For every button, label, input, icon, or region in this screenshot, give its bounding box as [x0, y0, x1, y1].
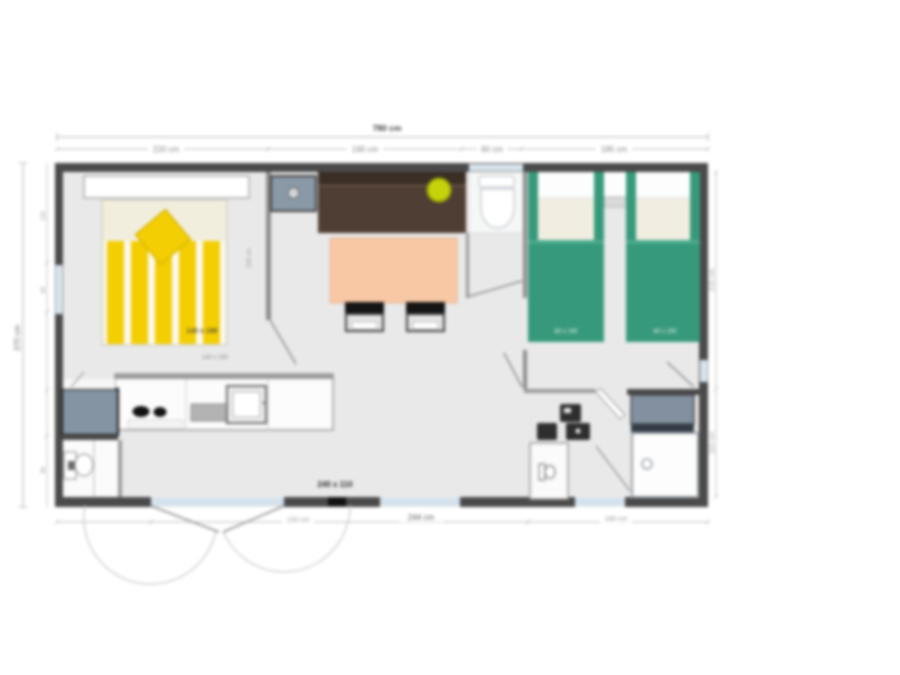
svg-text:80 x 190: 80 x 190 [653, 329, 677, 335]
svg-text:180 cm: 180 cm [605, 516, 628, 523]
svg-text:200 cm: 200 cm [247, 248, 253, 268]
svg-text:110 cm: 110 cm [709, 432, 716, 455]
svg-text:215 cm: 215 cm [709, 268, 716, 291]
svg-text:240 x 110: 240 x 110 [317, 480, 353, 489]
svg-text:80 x 190: 80 x 190 [554, 329, 578, 335]
svg-text:244 cm: 244 cm [408, 513, 435, 522]
svg-text:185 cm: 185 cm [601, 145, 628, 154]
svg-text:60 cm: 60 cm [481, 145, 503, 154]
svg-text:190 cm: 190 cm [352, 145, 379, 154]
svg-text:370 cm: 370 cm [13, 325, 22, 352]
svg-text:220 cm: 220 cm [153, 145, 180, 154]
svg-text:140 x 190: 140 x 190 [202, 355, 229, 361]
svg-text:140 x 190: 140 x 190 [186, 328, 217, 335]
svg-text:133 cm: 133 cm [287, 517, 310, 524]
svg-text:60: 60 [41, 466, 47, 473]
svg-text:50: 50 [41, 286, 47, 293]
svg-text:780 cm: 780 cm [373, 123, 402, 133]
svg-text:102: 102 [41, 210, 47, 221]
